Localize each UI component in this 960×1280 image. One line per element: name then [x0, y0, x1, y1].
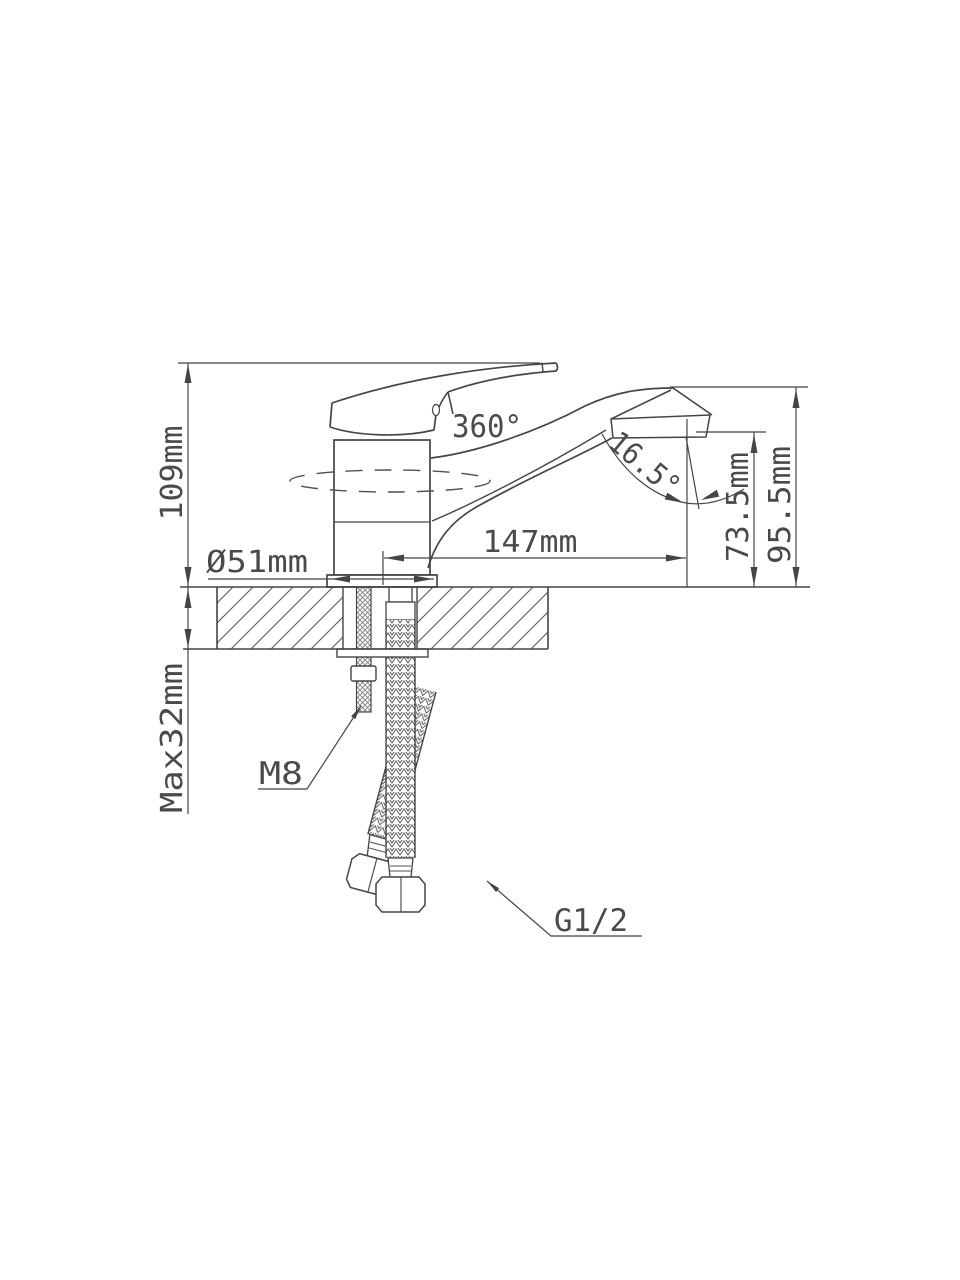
indicator-dot: [433, 405, 440, 416]
slab-hatch-left: [217, 587, 343, 649]
label-spout-reach: 147mm: [483, 525, 578, 560]
label-total-height: 109mm: [155, 426, 190, 521]
handle-lever: [330, 363, 558, 435]
hose-left-ferrule: [388, 858, 413, 877]
callouts: M8 G1/2: [258, 706, 642, 939]
product-dimension-sheet: 109mm Max32mm Ø51mm 360° 147mm 16.5° 73.…: [0, 0, 960, 1280]
label-swivel-angle: 360°: [452, 409, 522, 445]
handle-tip-mark: [542, 363, 543, 372]
hose-left-shank: [389, 587, 412, 602]
label-max-mount-thickness: Max32mm: [155, 663, 190, 813]
faucet-body: [334, 440, 430, 575]
label-stud-thread: M8: [259, 756, 303, 792]
label-outlet-height: 73.5mm: [721, 452, 756, 562]
label-spout-top-height: 95.5mm: [763, 446, 798, 564]
backing-plate: [337, 649, 428, 657]
countertop-slab: [217, 587, 548, 649]
faucet-technical-drawing: 109mm Max32mm Ø51mm 360° 147mm 16.5° 73.…: [0, 0, 960, 1280]
label-base-diameter: Ø51mm: [206, 545, 308, 580]
label-hose-connection-thread: G1/2: [554, 903, 628, 939]
stud-nut: [351, 666, 376, 681]
slab-hatch-right: [417, 587, 548, 649]
handle-cap: [330, 403, 436, 435]
